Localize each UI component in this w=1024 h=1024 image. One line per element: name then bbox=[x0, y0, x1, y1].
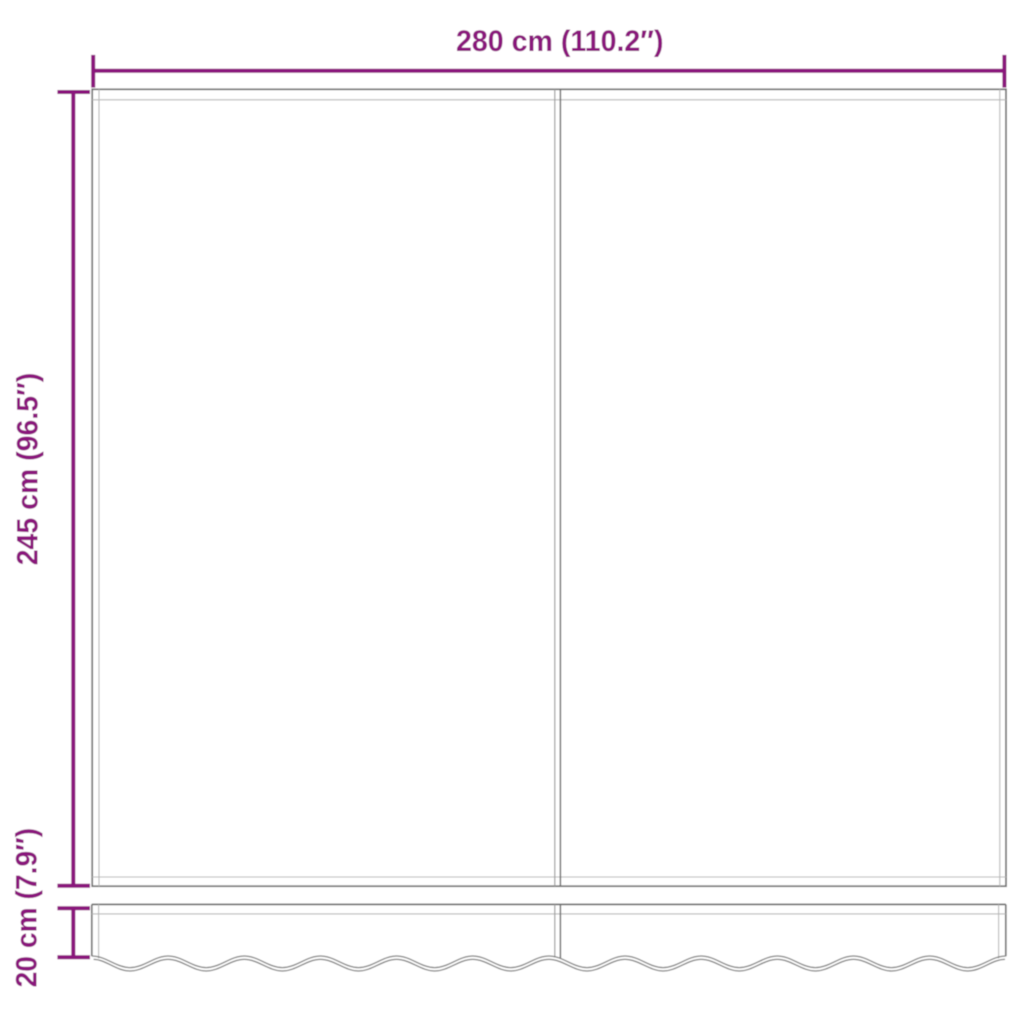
svg-text:245 cm (96.5″): 245 cm (96.5″) bbox=[11, 373, 44, 566]
svg-text:20 cm (7.9″): 20 cm (7.9″) bbox=[11, 828, 44, 988]
svg-text:280 cm (110.2″): 280 cm (110.2″) bbox=[456, 25, 664, 58]
